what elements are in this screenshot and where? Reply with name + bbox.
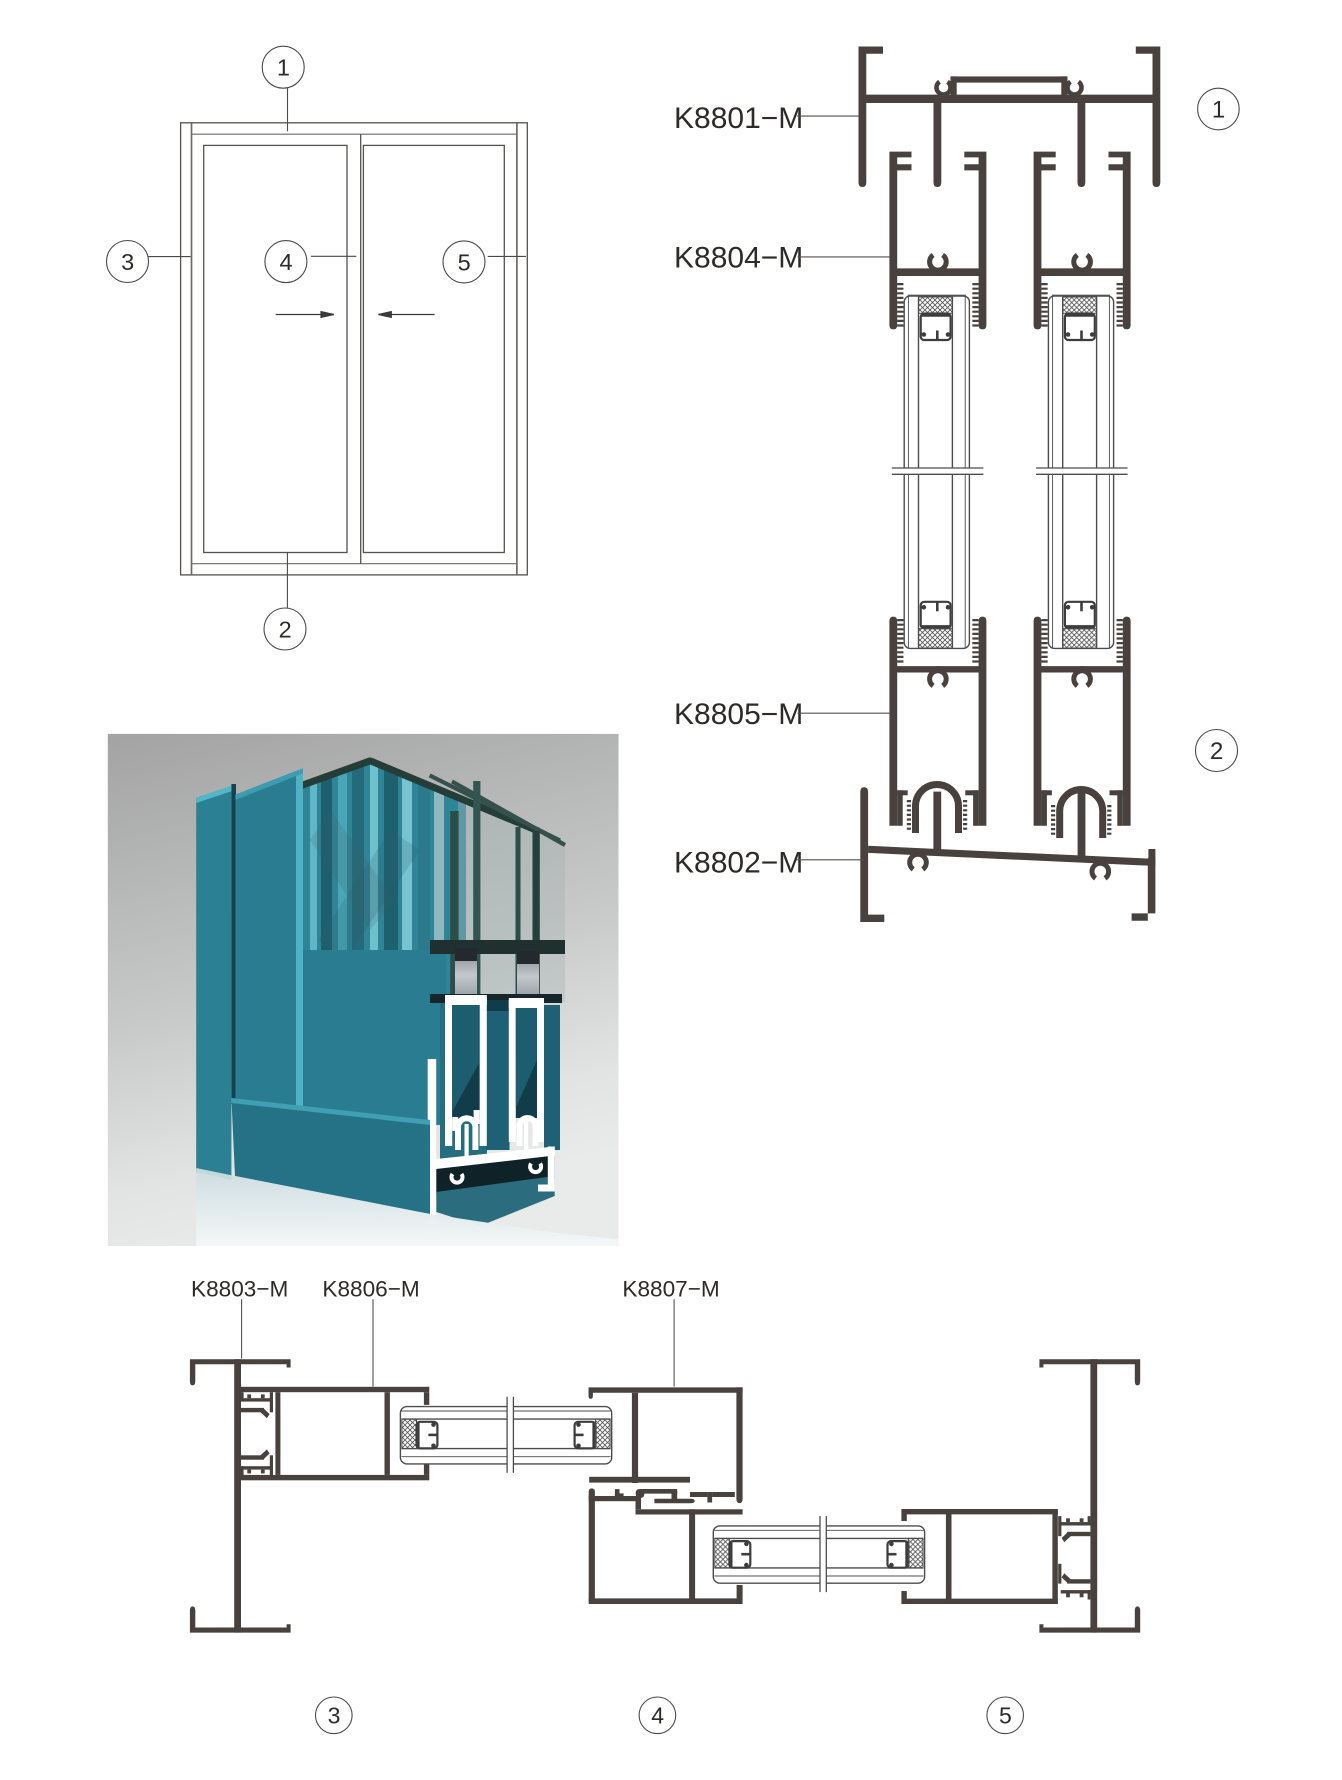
- svg-text:K8804−M: K8804−M: [674, 242, 803, 275]
- svg-text:1: 1: [1212, 97, 1225, 124]
- svg-text:5: 5: [999, 1702, 1012, 1728]
- svg-text:K8807−M: K8807−M: [622, 1277, 719, 1302]
- svg-text:2: 2: [1210, 738, 1223, 765]
- svg-text:4: 4: [280, 249, 293, 275]
- svg-text:4: 4: [651, 1702, 664, 1728]
- svg-text:2: 2: [279, 617, 292, 643]
- svg-text:K8801−M: K8801−M: [674, 102, 803, 135]
- svg-text:K8806−M: K8806−M: [322, 1277, 419, 1302]
- svg-text:3: 3: [121, 249, 134, 275]
- svg-text:K8805−M: K8805−M: [674, 698, 803, 731]
- svg-text:K8802−M: K8802−M: [674, 847, 803, 880]
- svg-text:3: 3: [328, 1702, 341, 1728]
- svg-text:5: 5: [458, 249, 471, 275]
- svg-text:K8803−M: K8803−M: [191, 1277, 288, 1302]
- svg-text:1: 1: [277, 55, 290, 81]
